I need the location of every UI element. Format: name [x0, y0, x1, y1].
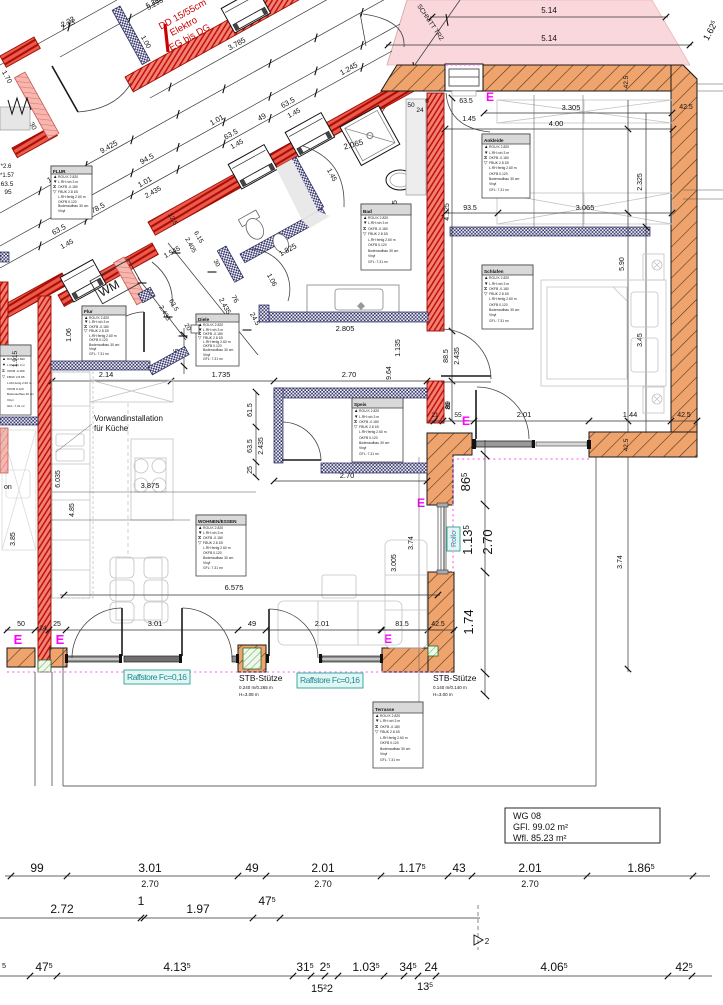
svg-text:1.06: 1.06 — [66, 328, 73, 342]
svg-text:61.5: 61.5 — [247, 403, 254, 417]
svg-text:*1.57: *1.57 — [0, 173, 15, 179]
svg-text:STB-Stütze: STB-Stütze — [239, 673, 283, 683]
svg-text:H=3.08 m: H=3.08 m — [239, 692, 259, 697]
svg-text:2.72: 2.72 — [50, 902, 74, 916]
svg-text:⧖: ⧖ — [2, 368, 5, 373]
svg-text:OKFB 0.120: OKFB 0.120 — [380, 741, 399, 745]
svg-text:OKFB 0.120: OKFB 0.120 — [489, 303, 508, 307]
svg-text:L.RH roh 3 m: L.RH roh 3 m — [359, 415, 379, 419]
svg-text:L.RH fertig 2.60 m: L.RH fertig 2.60 m — [380, 736, 408, 740]
svg-text:93.5: 93.5 — [463, 205, 477, 212]
svg-text:Raffstore Fc=0,16: Raffstore Fc=0,16 — [300, 675, 360, 685]
svg-text:1.865: 1.865 — [627, 861, 654, 875]
svg-text:FBUK 2.8 1B: FBUK 2.8 1B — [7, 375, 25, 379]
svg-text:49: 49 — [248, 619, 256, 628]
svg-text:OKFB 0.120: OKFB 0.120 — [359, 436, 378, 440]
svg-text:4.125: 4.125 — [444, 203, 451, 221]
svg-text:42.5: 42.5 — [623, 438, 630, 451]
svg-text:Vinyl: Vinyl — [368, 254, 376, 258]
svg-text:Ankleide: Ankleide — [484, 138, 504, 143]
svg-text:L.RH fertig 2.60 m: L.RH fertig 2.60 m — [368, 238, 396, 242]
svg-text:1.97: 1.97 — [186, 902, 210, 916]
svg-text:L.RH fertig 2.60 m: L.RH fertig 2.60 m — [58, 195, 86, 199]
svg-text:6.035: 6.035 — [55, 470, 62, 488]
svg-text:Bodenaufbau 30 cm: Bodenaufbau 30 cm — [203, 556, 234, 560]
svg-text:L.RH roh 3 m: L.RH roh 3 m — [489, 151, 509, 155]
svg-text:GFl. 99.02 m²: GFl. 99.02 m² — [513, 822, 568, 832]
svg-text:Terrasse: Terrasse — [375, 707, 395, 712]
svg-text:2.14: 2.14 — [99, 370, 114, 379]
svg-text:4.065: 4.065 — [540, 960, 567, 974]
svg-text:GFL: 7.31 m²: GFL: 7.31 m² — [380, 758, 401, 762]
svg-text:2.70: 2.70 — [340, 471, 355, 480]
svg-text:1.74: 1.74 — [461, 609, 476, 634]
svg-text:on: on — [4, 484, 12, 491]
svg-text:2.325: 2.325 — [637, 173, 644, 191]
svg-text:OKFB -0.180: OKFB -0.180 — [203, 536, 223, 540]
svg-text:Raffstore Fc=0,16: Raffstore Fc=0,16 — [127, 672, 187, 682]
svg-text:E: E — [56, 632, 65, 647]
svg-text:3.065: 3.065 — [576, 203, 595, 212]
svg-text:0.240 m/0.265 m: 0.240 m/0.265 m — [239, 685, 273, 690]
svg-text:2.435: 2.435 — [454, 347, 461, 365]
svg-text:L.RH fertig 2.60 m: L.RH fertig 2.60 m — [203, 546, 231, 550]
svg-text:2.01: 2.01 — [518, 861, 542, 875]
svg-text:1.45: 1.45 — [462, 116, 476, 123]
svg-text:Bodenaufbau 30 cm: Bodenaufbau 30 cm — [58, 204, 89, 208]
svg-text:88.5: 88.5 — [443, 349, 450, 363]
svg-text:L.RH roh 3 m: L.RH roh 3 m — [58, 180, 78, 184]
svg-text:Bad: Bad — [363, 209, 372, 214]
svg-text:4.85: 4.85 — [69, 503, 76, 517]
svg-text:FBUK 2.8 1B: FBUK 2.8 1B — [380, 730, 401, 734]
svg-text:Bodenaufbau 30 cm: Bodenaufbau 30 cm — [359, 441, 390, 445]
svg-text:2.01: 2.01 — [517, 410, 532, 419]
svg-text:Bodenaufbau 30 cm: Bodenaufbau 30 cm — [489, 308, 520, 312]
svg-text:OKFB -0.180: OKFB -0.180 — [489, 156, 509, 160]
svg-text:GFL: 7.31 m²: GFL: 7.31 m² — [203, 357, 224, 361]
svg-text:GFL: 7.31 m²: GFL: 7.31 m² — [489, 319, 510, 323]
svg-text:25: 25 — [53, 621, 61, 628]
svg-text:ROU.K 2.820: ROU.K 2.820 — [359, 409, 379, 413]
svg-text:WG 08: WG 08 — [513, 811, 541, 821]
svg-text:6.575: 6.575 — [225, 583, 244, 592]
svg-text:89: 89 — [445, 402, 452, 410]
svg-text:3.005: 3.005 — [391, 554, 398, 572]
svg-text:OKFB -0.180: OKFB -0.180 — [359, 420, 379, 424]
svg-text:Flur: Flur — [84, 309, 93, 314]
svg-text:99: 99 — [30, 861, 44, 875]
svg-text:3.01: 3.01 — [148, 619, 163, 628]
svg-text:FBUK 2.8 1B: FBUK 2.8 1B — [489, 292, 510, 296]
svg-text:24: 24 — [39, 625, 47, 632]
svg-text:OKFB 0.120: OKFB 0.120 — [203, 551, 222, 555]
svg-text:FBUK 2.8 1B: FBUK 2.8 1B — [58, 190, 79, 194]
svg-text:ROU.K 2.820: ROU.K 2.820 — [58, 175, 78, 179]
svg-text:Vinyl: Vinyl — [89, 347, 97, 351]
svg-text:Vorwandinstallation: Vorwandinstallation — [94, 414, 163, 423]
svg-text:1.135: 1.135 — [395, 339, 402, 357]
svg-text:Vinyl: Vinyl — [203, 561, 211, 565]
svg-text:42.5: 42.5 — [623, 75, 630, 88]
svg-text:ROU.K 2.820: ROU.K 2.820 — [380, 714, 400, 718]
svg-text:5.14: 5.14 — [541, 34, 557, 43]
svg-text:E: E — [417, 496, 425, 510]
svg-text:▼: ▼ — [2, 362, 6, 367]
svg-text:1: 1 — [138, 894, 145, 908]
svg-text:H=3.00 m: H=3.00 m — [433, 692, 453, 697]
svg-text:OKFB -0.180: OKFB -0.180 — [368, 227, 388, 231]
svg-text:L.RH roh 3 m: L.RH roh 3 m — [380, 719, 400, 723]
svg-text:▲: ▲ — [2, 356, 6, 361]
svg-text:63.5: 63.5 — [1, 181, 14, 188]
svg-text:Bodenaufbau 30 cm: Bodenaufbau 30 cm — [489, 177, 520, 181]
svg-text:STB-Stütze: STB-Stütze — [433, 673, 477, 683]
svg-text:GFL: 7.31 m²: GFL: 7.31 m² — [359, 452, 380, 456]
svg-text:24: 24 — [424, 960, 438, 974]
svg-text:1.44: 1.44 — [623, 410, 638, 419]
svg-text:1.175: 1.175 — [398, 861, 425, 875]
svg-text:21: 21 — [431, 412, 439, 419]
svg-text:E: E — [486, 90, 494, 104]
svg-text:42.5: 42.5 — [679, 104, 693, 111]
svg-text:2.70: 2.70 — [314, 879, 332, 889]
svg-text:Bodenaufbau 30 cm: Bodenaufbau 30 cm — [7, 392, 34, 396]
svg-text:L.RH fertig 2.60 m: L.RH fertig 2.60 m — [7, 381, 32, 385]
svg-text:Vinyl: Vinyl — [58, 209, 66, 213]
svg-text:ROU.K 2.820: ROU.K 2.820 — [203, 526, 223, 530]
svg-text:E: E — [14, 632, 23, 647]
svg-text:49: 49 — [245, 861, 259, 875]
svg-text:L.RH fertig 2.60 m: L.RH fertig 2.60 m — [359, 430, 387, 434]
svg-text:L.RH fertig 2.60 m: L.RH fertig 2.60 m — [489, 297, 517, 301]
svg-text:OKFB 0.120: OKFB 0.120 — [489, 172, 508, 176]
svg-text:24: 24 — [416, 107, 424, 114]
svg-text:E: E — [462, 414, 470, 428]
svg-text:▲: ▲ — [354, 408, 358, 413]
svg-text:2.70: 2.70 — [342, 370, 357, 379]
svg-text:Vinyl: Vinyl — [380, 752, 388, 756]
svg-text:ROU.K 2.820: ROU.K 2.820 — [368, 216, 388, 220]
svg-text:63.5: 63.5 — [459, 98, 473, 105]
svg-text:OKFB 0.120: OKFB 0.120 — [89, 338, 108, 342]
svg-text:5.90: 5.90 — [619, 257, 626, 271]
svg-text:Rollo: Rollo — [451, 531, 458, 547]
svg-text:▲: ▲ — [484, 275, 488, 280]
svg-text:2.01: 2.01 — [311, 861, 335, 875]
svg-text:GFL: 7.31 m²: GFL: 7.31 m² — [368, 260, 389, 264]
svg-text:63.5: 63.5 — [247, 439, 254, 453]
svg-text:Wfl. 85.23 m²: Wfl. 85.23 m² — [513, 833, 567, 843]
svg-text:GFL: 7.31 m²: GFL: 7.31 m² — [203, 566, 224, 570]
svg-text:4.135: 4.135 — [163, 960, 190, 974]
svg-text:3.45: 3.45 — [637, 333, 644, 347]
svg-text:OKFB 0.120: OKFB 0.120 — [368, 243, 387, 247]
svg-text:Schlafen: Schlafen — [484, 269, 504, 274]
svg-text:GFL: 7.31 m²: GFL: 7.31 m² — [7, 404, 25, 408]
svg-text:Bodenaufbau 30 cm: Bodenaufbau 30 cm — [368, 249, 399, 253]
svg-text:9.64: 9.64 — [386, 366, 393, 380]
svg-text:FBUK 2.8 1B: FBUK 2.8 1B — [89, 329, 110, 333]
svg-text:L.RH roh 3 m: L.RH roh 3 m — [368, 221, 388, 225]
svg-text:ROU.K 2.820: ROU.K 2.820 — [489, 276, 509, 280]
svg-text:▲: ▲ — [484, 144, 488, 149]
svg-text:für Küche: für Küche — [94, 424, 129, 433]
svg-text:95: 95 — [4, 189, 12, 196]
svg-text:Bodenaufbau 30 cm: Bodenaufbau 30 cm — [203, 348, 234, 352]
svg-text:OKFB 0.120: OKFB 0.120 — [7, 387, 24, 391]
svg-text:OKFB -0.180: OKFB -0.180 — [380, 725, 400, 729]
svg-text:3.85: 3.85 — [10, 532, 17, 546]
svg-text:2.01: 2.01 — [315, 619, 330, 628]
svg-text:▼: ▼ — [363, 220, 367, 225]
svg-text:L.RH roh 3 m: L.RH roh 3 m — [203, 531, 223, 535]
svg-text:OKFB -0.180: OKFB -0.180 — [58, 185, 78, 189]
svg-text:5: 5 — [2, 961, 6, 970]
svg-text:43: 43 — [452, 861, 466, 875]
svg-text:55: 55 — [454, 412, 462, 419]
svg-text:1.035: 1.035 — [352, 960, 379, 974]
svg-text:4.00: 4.00 — [549, 119, 564, 128]
svg-text:ROU.K 2.820: ROU.K 2.820 — [489, 145, 509, 149]
svg-text:50: 50 — [407, 102, 415, 109]
svg-text:1.735: 1.735 — [212, 370, 231, 379]
svg-text:3.74: 3.74 — [408, 536, 415, 550]
svg-text:42.5: 42.5 — [677, 412, 691, 419]
svg-text:Vinyl: Vinyl — [489, 182, 497, 186]
svg-text:2.70: 2.70 — [480, 529, 495, 554]
svg-text:Vinyl: Vinyl — [359, 446, 367, 450]
svg-text:L.RH roh 3 m: L.RH roh 3 m — [489, 282, 509, 286]
svg-text:OKFB -0.180: OKFB -0.180 — [7, 369, 25, 373]
svg-text:L.RH roh 3 m: L.RH roh 3 m — [89, 320, 109, 324]
svg-text:Speis: Speis — [354, 402, 367, 407]
svg-text:3.74: 3.74 — [617, 555, 624, 569]
svg-text:Bodenaufbau 30 cm: Bodenaufbau 30 cm — [380, 747, 411, 751]
svg-text:2.805: 2.805 — [336, 324, 355, 333]
svg-text:2.70: 2.70 — [521, 879, 539, 889]
svg-text:1.915: 1.915 — [12, 350, 19, 367]
svg-text:3.01: 3.01 — [138, 861, 162, 875]
svg-text:FBUK 2.8 1B: FBUK 2.8 1B — [368, 232, 389, 236]
svg-text:42.5: 42.5 — [431, 621, 445, 628]
svg-text:Vinyl: Vinyl — [489, 313, 497, 317]
svg-text:3.875: 3.875 — [141, 481, 160, 490]
svg-text:Vinyl: Vinyl — [7, 398, 14, 402]
svg-text:GFL: 7.31 m²: GFL: 7.31 m² — [89, 352, 110, 356]
svg-text:FBUK 2.8 1B: FBUK 2.8 1B — [359, 425, 380, 429]
svg-text:2: 2 — [485, 937, 490, 946]
svg-text:▼: ▼ — [375, 718, 379, 723]
svg-text:WOHNEN/ESSEN: WOHNEN/ESSEN — [198, 519, 237, 524]
svg-text:5.14: 5.14 — [541, 6, 557, 15]
svg-text:15²2: 15²2 — [311, 983, 333, 995]
svg-text:ROU.K 2.820: ROU.K 2.820 — [203, 323, 223, 327]
svg-text:*2.6: *2.6 — [1, 164, 12, 170]
svg-text:25: 25 — [247, 466, 254, 474]
svg-text:0.140 m/0.140 m: 0.140 m/0.140 m — [433, 685, 467, 690]
svg-text:3.305: 3.305 — [562, 103, 581, 112]
svg-text:FBUK 2.8 1B: FBUK 2.8 1B — [489, 161, 510, 165]
svg-text:OKFB -0.180: OKFB -0.180 — [489, 287, 509, 291]
svg-text:50: 50 — [17, 621, 25, 628]
svg-text:GFL: 7.31 m²: GFL: 7.31 m² — [489, 188, 510, 192]
svg-text:2.70: 2.70 — [141, 879, 159, 889]
svg-text:FBUK 2.8 1B: FBUK 2.8 1B — [203, 541, 224, 545]
svg-text:L.RH fertig 2.60 m: L.RH fertig 2.60 m — [489, 166, 517, 170]
svg-text:6: 6 — [425, 98, 429, 105]
svg-text:2.435: 2.435 — [258, 437, 265, 455]
